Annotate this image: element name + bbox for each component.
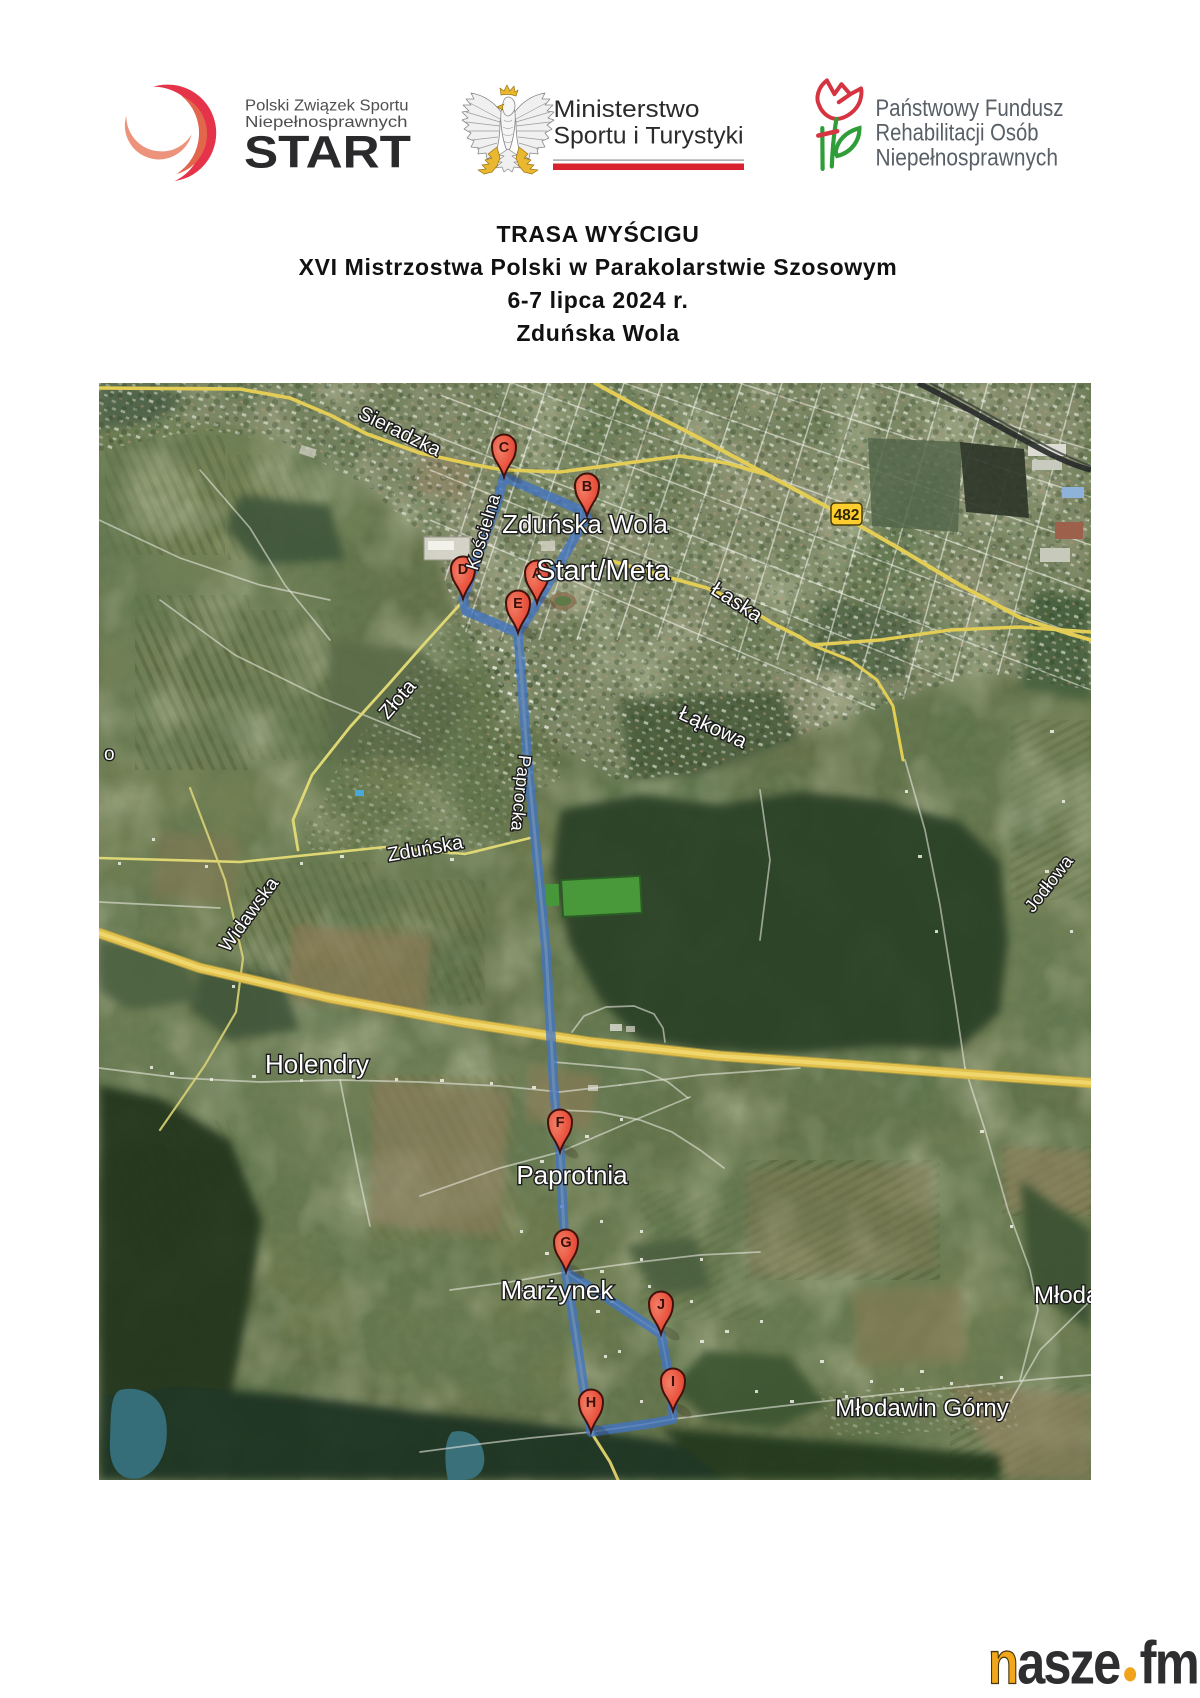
svg-text:Młodawin Górny: Młodawin Górny xyxy=(835,1395,1008,1422)
svg-text:H: H xyxy=(586,1395,596,1411)
svg-text:B: B xyxy=(582,479,592,495)
svg-text:Sportu i Turystyki: Sportu i Turystyki xyxy=(554,123,744,150)
svg-text:Paprotnia: Paprotnia xyxy=(516,1160,628,1190)
svg-text:F: F xyxy=(556,1115,565,1131)
svg-text:Marżynek: Marżynek xyxy=(501,1275,615,1305)
svg-text:Polski Związek Sportu: Polski Związek Sportu xyxy=(245,98,409,115)
svg-text:o: o xyxy=(104,744,115,765)
svg-text:Młodaw: Młodaw xyxy=(1034,1282,1091,1309)
svg-text:Holendry: Holendry xyxy=(265,1049,369,1079)
svg-text:E: E xyxy=(513,596,523,612)
svg-text:482: 482 xyxy=(834,507,860,524)
svg-text:Niepełnosprawnych: Niepełnosprawnych xyxy=(876,144,1059,171)
svg-text:Państwowy Fundusz: Państwowy Fundusz xyxy=(876,95,1064,122)
svg-text:I: I xyxy=(671,1374,675,1390)
svg-text:J: J xyxy=(657,1297,665,1313)
svg-text:Ministerstwo: Ministerstwo xyxy=(554,96,700,123)
svg-text:Start/Meta: Start/Meta xyxy=(536,555,671,587)
svg-text:START: START xyxy=(244,127,411,178)
svg-text:G: G xyxy=(560,1235,571,1251)
svg-text:Zduńska Wola: Zduńska Wola xyxy=(502,509,668,539)
svg-text:C: C xyxy=(499,440,510,456)
svg-text:Rehabilitacji Osób: Rehabilitacji Osób xyxy=(876,120,1039,147)
